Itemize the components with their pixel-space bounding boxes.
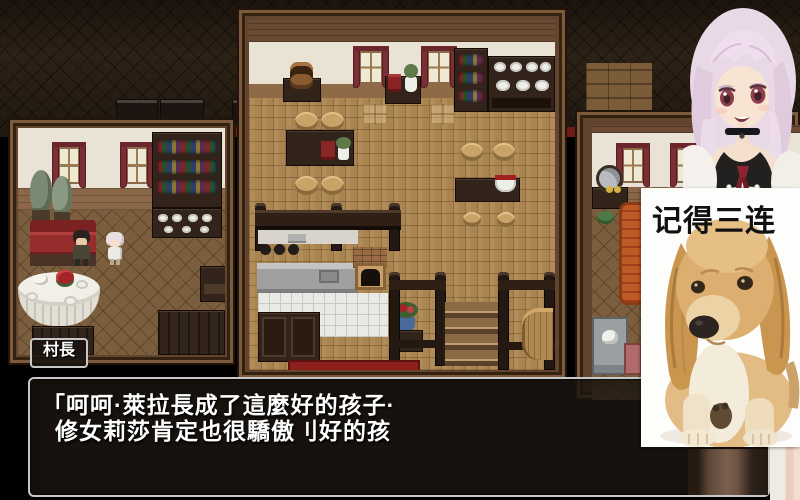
room-left (8, 118, 235, 365)
curtain (643, 143, 650, 187)
dish-cabinet (488, 56, 555, 112)
bookshelf (152, 132, 222, 208)
teapot (34, 274, 48, 285)
vase-plant (336, 137, 351, 160)
kitchen-beam (255, 210, 401, 230)
kitchen-counter (257, 263, 357, 293)
speaker-name: 村長 (43, 342, 75, 359)
overlay-art-edge (770, 447, 800, 500)
curtain-valance (52, 142, 86, 147)
dialogue-line-2: 修女莉莎肯定也很驕傲刂好的孩 (55, 412, 391, 446)
fence-panel (158, 310, 225, 355)
stove (592, 317, 628, 375)
curtain-valance (421, 46, 457, 51)
npc-village-chief (70, 230, 93, 266)
red-carpet (288, 360, 420, 370)
stool (463, 212, 481, 227)
curtain (353, 46, 360, 88)
curtain (120, 142, 127, 188)
sink (319, 270, 339, 283)
chair (200, 266, 225, 302)
hanging-pots (260, 242, 304, 256)
curtain-valance (120, 142, 154, 147)
room-main (237, 8, 567, 380)
railing (389, 272, 446, 366)
curtain (670, 143, 677, 187)
window (353, 46, 389, 88)
stairs (443, 302, 500, 366)
bed-corner (624, 343, 642, 375)
stool (461, 143, 483, 161)
ceiling-trim (249, 20, 555, 42)
floor-light (431, 104, 455, 124)
food-bowl (495, 175, 516, 192)
cabinet-doors (258, 312, 320, 362)
vase-plant (404, 64, 418, 92)
curtain-valance (616, 143, 650, 148)
game-screen: 村長 「呵呵·萊拉長成了這麼好的孩子· 修女莉莎肯定也很驕傲刂好的孩 (0, 0, 800, 500)
oven (355, 263, 386, 290)
stool (497, 212, 515, 227)
barrel (290, 62, 313, 89)
floor-light (363, 104, 387, 124)
red-box (321, 141, 335, 160)
player-character (104, 232, 126, 266)
window (421, 46, 457, 88)
photo-card: 记得三连 (641, 188, 800, 447)
flowers (56, 270, 74, 284)
green-cushion (597, 211, 614, 224)
anime-girl-avatar (683, 0, 800, 200)
window (120, 142, 154, 188)
stool (493, 143, 515, 161)
curtain-valance (353, 46, 389, 51)
stool (321, 176, 344, 195)
window-pane (359, 51, 383, 84)
bookcase (454, 48, 488, 112)
curtain (421, 46, 428, 88)
dish-counter (152, 208, 222, 238)
curved-side-table (522, 308, 553, 360)
red-book-stack (388, 74, 401, 92)
photo-card-caption: 记得三连 (652, 196, 776, 240)
stool (321, 112, 344, 131)
stool (295, 176, 318, 195)
round-table (18, 266, 100, 330)
gold-trinkets (606, 185, 622, 195)
window-pane (126, 147, 148, 184)
curtain (79, 142, 86, 188)
stool (295, 112, 318, 131)
speaker-name-box: 村長 (30, 338, 88, 368)
window-pane (427, 51, 451, 84)
kitchen-shelf-items (288, 234, 306, 243)
overlay-art-shaded (688, 449, 768, 495)
